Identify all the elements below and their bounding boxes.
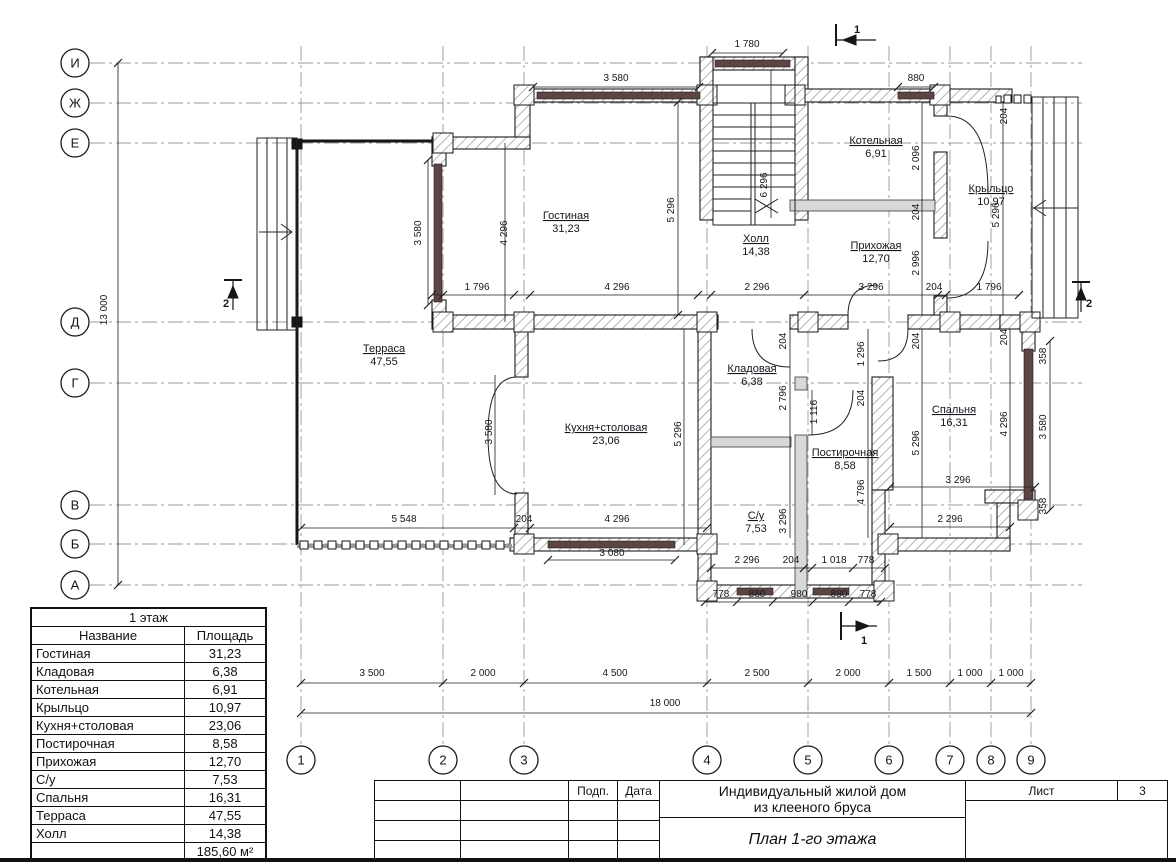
dimension-label: 358	[1038, 497, 1049, 514]
wall	[997, 503, 1010, 541]
wall	[872, 377, 893, 490]
room-area-label: 23,06	[592, 435, 620, 447]
axis-col-label: 9	[1027, 753, 1034, 768]
room-area-cell: 6,38	[185, 663, 267, 681]
railing-post	[370, 541, 378, 549]
legend-col-area: Площадь	[185, 627, 267, 645]
axis-row-label: В	[71, 498, 80, 513]
dimension-label: 778	[858, 555, 875, 566]
axis-col-label: 5	[804, 753, 811, 768]
room-label: С/у	[748, 510, 765, 522]
table-row: Кладовая6,38	[31, 663, 266, 681]
axis-col-label: 2	[439, 753, 446, 768]
axis-col-label: 7	[946, 753, 953, 768]
axis-col-label: 6	[885, 753, 892, 768]
railing-posts	[300, 541, 504, 549]
dimension-label: 2 500	[744, 668, 769, 679]
dimension-label: 204	[999, 328, 1010, 345]
dimension-label: 778	[860, 589, 877, 600]
sheet-label: Лист	[966, 781, 1118, 801]
section-label: 2	[223, 298, 229, 310]
room-area-cell: 14,38	[185, 825, 267, 843]
table-row: Кухня+столовая23,06	[31, 717, 266, 735]
section-label: 1	[854, 24, 860, 36]
dimension-label: 880	[749, 589, 766, 600]
room-area-cell: 6,91	[185, 681, 267, 699]
dimension-label: 204	[911, 332, 922, 349]
porch-railing-posts	[996, 95, 1031, 103]
dimension-label: 4 796	[856, 479, 867, 504]
legend-title: 1 этаж	[31, 608, 266, 627]
dimension-label: 1 000	[998, 668, 1023, 679]
dimension-label: 1 116	[809, 399, 820, 424]
axis-row-label: И	[70, 56, 79, 71]
sheet-title: План 1-го этажа	[660, 818, 966, 861]
dimension-label: 2 796	[778, 385, 789, 410]
railing-post	[440, 541, 448, 549]
dimension-label: 2 296	[734, 555, 759, 566]
room-area-label: 47,55	[370, 356, 398, 368]
room-area-label: 10,97	[977, 196, 1005, 208]
dimension-label: 204	[911, 203, 922, 220]
window	[434, 164, 442, 302]
room-name-cell: Холл	[31, 825, 185, 843]
axis-col-label: 1	[297, 753, 304, 768]
room-area-label: 12,70	[862, 253, 890, 265]
dimension-label: 3 580	[1038, 414, 1049, 439]
dimension-label: 778	[713, 589, 730, 600]
railing-post	[328, 541, 336, 549]
room-area-cell: 16,31	[185, 789, 267, 807]
dimension-label: 2 000	[835, 668, 860, 679]
dimension-label: 5 296	[911, 430, 922, 455]
room-area-label: 31,23	[552, 223, 580, 235]
room-area-cell: 8,58	[185, 735, 267, 753]
room-area-cell: 7,53	[185, 771, 267, 789]
dimension-label: 1 796	[976, 282, 1001, 293]
room-label: Терраса	[363, 343, 406, 355]
railing-post	[426, 541, 434, 549]
section-label: 2	[1086, 298, 1092, 310]
railing-post	[482, 541, 490, 549]
room-name-cell: Крыльцо	[31, 699, 185, 717]
room-name-cell: Терраса	[31, 807, 185, 825]
room-area-cell: 10,97	[185, 699, 267, 717]
room-name-cell: Котельная	[31, 681, 185, 699]
sheet-bottom-border	[0, 858, 1176, 862]
railing-post	[412, 541, 420, 549]
dimension-label: 3 296	[778, 508, 789, 533]
dimension-label: 2 096	[911, 145, 922, 170]
room-area-label: 8,58	[834, 460, 855, 472]
wall	[893, 538, 1010, 551]
sheet-number: 3	[1118, 781, 1167, 801]
room-name-cell: Спальня	[31, 789, 185, 807]
room-area-label: 6,91	[865, 148, 886, 160]
dimension-label: 2 296	[937, 514, 962, 525]
axis-col-label: 4	[703, 753, 710, 768]
dimension-label: 1 500	[906, 668, 931, 679]
dimension-label: 880	[908, 73, 925, 84]
axis-row-label: Б	[71, 537, 80, 552]
room-label: Прихожая	[851, 240, 902, 252]
window	[898, 92, 934, 99]
dimension-label: 1 296	[856, 341, 867, 366]
window	[715, 60, 790, 67]
dimension-label: 2 296	[744, 282, 769, 293]
dimension-label: 980	[791, 589, 808, 600]
dimension-label: 5 548	[391, 514, 416, 525]
table-row: Терраса47,55	[31, 807, 266, 825]
room-label: Гостиная	[543, 210, 589, 222]
railing-post	[496, 541, 504, 549]
axis-row-label: Е	[71, 136, 80, 151]
dimension-label: 204	[926, 282, 943, 293]
window	[548, 541, 675, 548]
wall	[698, 329, 711, 598]
dimension-label: 6 296	[759, 172, 770, 197]
railing-post	[342, 541, 350, 549]
room-label: Кухня+столовая	[565, 422, 648, 434]
table-row: Крыльцо10,97	[31, 699, 266, 717]
section-labels: 1122	[223, 24, 1092, 647]
room-area-cell: 31,23	[185, 645, 267, 663]
room-area-label: 14,38	[742, 246, 770, 258]
wall	[700, 57, 713, 220]
dimension-label: 4 500	[602, 668, 627, 679]
dimension-label: 4 296	[499, 220, 510, 245]
title-block: Подп. Дата Индивидуальный жилой дом из к…	[374, 780, 1168, 862]
room-area-label: 7,53	[745, 523, 766, 535]
railing-post	[384, 541, 392, 549]
axis-row-label: Ж	[69, 96, 81, 111]
dimension-label: 5 296	[666, 197, 677, 222]
room-label: Крыльцо	[969, 183, 1014, 195]
dimension-label: 13 000	[99, 294, 110, 325]
dimension-label: 3 580	[603, 73, 628, 84]
dimension-label: 358	[1038, 347, 1049, 364]
door-bedroom	[878, 329, 908, 361]
dimension-label: 4 296	[999, 411, 1010, 436]
wall	[515, 329, 528, 377]
stair-entrance-east	[1032, 97, 1078, 318]
railing-post	[300, 541, 308, 549]
room-label: Кладовая	[727, 363, 776, 375]
table-row: Гостиная31,23	[31, 645, 266, 663]
axis-row-label: А	[71, 578, 80, 593]
dimension-label: 204	[999, 107, 1010, 124]
table-row: Спальня16,31	[31, 789, 266, 807]
dimension-label: 204	[783, 555, 800, 566]
dimension-label: 4 296	[604, 514, 629, 525]
dimension-label: 204	[856, 389, 867, 406]
dimension-label: 4 296	[604, 282, 629, 293]
table-row: Холл14,38	[31, 825, 266, 843]
section-label: 1	[861, 635, 867, 647]
window	[1024, 349, 1033, 499]
room-area-cell: 23,06	[185, 717, 267, 735]
table-row: Прихожая12,70	[31, 753, 266, 771]
door-porch-top	[947, 116, 988, 193]
table-row: Постирочная8,58	[31, 735, 266, 753]
railing-post	[468, 541, 476, 549]
axis-col-label: 3	[520, 753, 527, 768]
axis-row-label: Г	[71, 376, 78, 391]
dimension-label: 3 080	[599, 548, 624, 559]
dimension-label: 3 296	[945, 475, 970, 486]
dimension-label: 2 000	[470, 668, 495, 679]
data-label: Дата	[618, 781, 660, 801]
podp-label: Подп.	[569, 781, 618, 801]
railing-post	[398, 541, 406, 549]
room-name-cell: Кладовая	[31, 663, 185, 681]
room-name-cell: Прихожая	[31, 753, 185, 771]
axis-row-label: Д	[71, 315, 80, 330]
dimension-label: 1 000	[957, 668, 982, 679]
floor-plan-sheet: ИЖЕДГВБА123456789 1 7803 5808801 7964 29…	[0, 0, 1176, 865]
dimension-label: 1 796	[464, 282, 489, 293]
dimension-label: 1 780	[734, 39, 759, 50]
railing-post	[454, 541, 462, 549]
stair-main	[713, 85, 795, 225]
room-label: Холл	[743, 233, 769, 245]
room-name-cell: Кухня+столовая	[31, 717, 185, 735]
stair-terrace-west	[257, 138, 297, 330]
window	[537, 92, 700, 99]
room-area-label: 16,31	[940, 417, 968, 429]
wall	[795, 57, 808, 220]
dimension-label: 3 580	[413, 220, 424, 245]
dimension-label: 3 296	[858, 282, 883, 293]
legend-col-name: Название	[31, 627, 185, 645]
dimension-label: 204	[516, 514, 533, 525]
room-name-cell: Постирочная	[31, 735, 185, 753]
project-title: Индивидуальный жилой дом из клееного бру…	[660, 781, 966, 818]
railing-post	[314, 541, 322, 549]
room-area-cell: 47,55	[185, 807, 267, 825]
room-name-cell: С/у	[31, 771, 185, 789]
axis-col-label: 8	[987, 753, 994, 768]
room-label: Котельная	[849, 135, 902, 147]
room-name-cell: Гостиная	[31, 645, 185, 663]
dimension-label: 204	[778, 332, 789, 349]
room-label: Постирочная	[812, 447, 879, 459]
table-row: С/у7,53	[31, 771, 266, 789]
dimension-label: 880	[831, 589, 848, 600]
dimension-label: 3 580	[484, 419, 495, 444]
area-legend-table: 1 этаж Название Площадь Гостиная31,23 Кл…	[30, 607, 267, 862]
dimension-label: 3 500	[359, 668, 384, 679]
dimension-label: 18 000	[650, 698, 681, 709]
table-row: Котельная6,91	[31, 681, 266, 699]
dimension-label: 5 296	[673, 421, 684, 446]
dimension-label: 1 018	[821, 555, 846, 566]
railing-post	[356, 541, 364, 549]
wall	[934, 152, 947, 238]
dimension-label: 2 996	[911, 250, 922, 275]
room-area-label: 6,38	[741, 376, 762, 388]
room-label: Спальня	[932, 404, 976, 416]
room-area-cell: 12,70	[185, 753, 267, 771]
